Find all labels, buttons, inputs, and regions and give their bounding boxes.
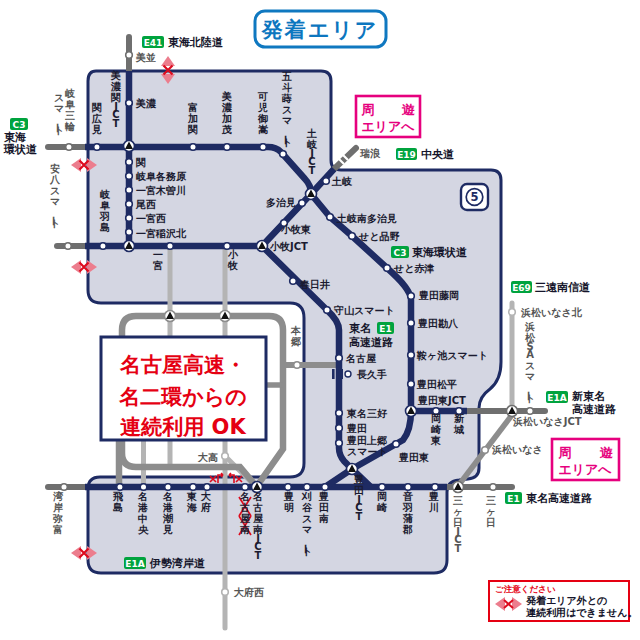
road-name: 東名 — [348, 322, 371, 335]
station-label: 関 — [136, 157, 146, 168]
station-label: 東名三好 — [346, 408, 388, 419]
station-label: 豊田東 — [398, 452, 429, 463]
station-label: 湾岸弥富 — [52, 491, 64, 535]
station-label: 岐阜三輪 — [64, 88, 76, 132]
badge-e1-east: E1 東名高速道路 — [505, 492, 592, 505]
svg-text:C3: C3 — [394, 248, 407, 258]
station-label: 豊明 — [283, 491, 294, 513]
note-line3: 連続利用 OK — [119, 415, 246, 439]
station-label: 名港中央 — [137, 491, 149, 535]
station-label: 大高 — [197, 452, 218, 463]
station-label: 名古屋南 — [239, 491, 251, 535]
station-label: 大府 — [200, 491, 211, 513]
page-title: 発着エリア — [261, 18, 378, 42]
shuyu-word1: 周 — [361, 102, 375, 117]
svg-text:E1A: E1A — [125, 559, 144, 569]
station-label: 小牧 — [227, 249, 239, 271]
svg-text:E69: E69 — [512, 283, 531, 293]
station-label: 多治見 — [266, 197, 296, 208]
station-label: 瑞浪 — [359, 148, 381, 159]
station-label: 三ヶ日 — [486, 495, 496, 528]
badge-e1a-isewangan: E1A 伊勢湾岸道 — [124, 557, 206, 570]
title-box: 発着エリア — [255, 11, 386, 47]
station-label: 土岐南多治見 — [336, 213, 397, 224]
station-label: 浜松SAスマート — [523, 321, 536, 404]
warning-line1: 発着エリア外との — [525, 595, 607, 606]
station-label: 長久手 — [356, 369, 387, 380]
road-name: 三遠南信道 — [535, 281, 591, 294]
station-label: 刈谷スマート — [300, 491, 313, 557]
badge-c3-west: C3 東海 環状道 — [3, 118, 38, 156]
shuyu-line2: エリアへ — [558, 462, 612, 477]
badge-e19: E19 中央道 — [396, 148, 455, 161]
station-label: 守山スマート — [334, 305, 395, 316]
station-label: 豊田松平 — [416, 379, 457, 390]
station-label: 新城 — [453, 413, 465, 435]
svg-text:C3: C3 — [13, 120, 26, 130]
station-label: 豊田 — [346, 423, 367, 434]
station-label: 豊田上郷 — [346, 435, 387, 446]
shuyu-word1: 周 — [558, 445, 572, 460]
station-label: 浜松いなさ北 — [520, 307, 583, 319]
map-number-badge: 5 — [461, 184, 488, 210]
road-name: 中央道 — [421, 148, 455, 161]
station-label: 飛島 — [112, 491, 123, 513]
station-label: 美濃加茂 — [221, 91, 233, 135]
station-label: 岡崎 — [377, 491, 387, 513]
station-label: 東海 — [186, 491, 197, 513]
note-box: 名古屋高速・ 名二環からの 連続利用 OK — [101, 337, 266, 440]
station-label: 関広見 — [91, 102, 102, 135]
badge-e69: E69 三遠南信道 — [511, 281, 591, 294]
station-label: 鞍ヶ池スマート — [416, 350, 488, 361]
road-name: 東海北陸道 — [167, 36, 224, 49]
road-name: 環状道 — [3, 143, 38, 156]
warning-line2: 連続利用はできません。 — [526, 607, 637, 618]
station-label: 豊田勘八 — [417, 318, 459, 329]
map-number: 5 — [470, 190, 478, 204]
shuyu-word2: 遊 — [600, 445, 614, 460]
station-label: せと品野 — [358, 231, 399, 242]
station-label: 岐阜各務原 — [136, 171, 187, 182]
station-label: 豊田南 — [318, 491, 329, 524]
shuyu-line2: エリアへ — [361, 119, 415, 134]
station-label: 本郷 — [290, 325, 301, 347]
road-name: 高速道路 — [572, 403, 616, 416]
station-label: スマート — [52, 92, 64, 136]
station-label: 富加関 — [187, 102, 198, 135]
road-name: 東海環状道 — [411, 246, 468, 259]
svg-text:E1: E1 — [379, 324, 391, 334]
expressway-area-map: 発着エリア 5 周 遊 エリアへ 周 遊 エリアへ 名古屋高速・ 名二環からの … — [0, 0, 640, 640]
note-line2: 名二環からの — [118, 385, 246, 409]
shuyu-box-right: 周 遊 エリアへ — [552, 439, 619, 480]
station-label: 小牧東 — [280, 224, 311, 235]
station-label: 一宮木曽川 — [136, 185, 186, 196]
station-label: 尾西 — [135, 199, 156, 210]
svg-text:E41: E41 — [144, 38, 163, 48]
station-label: 大府西 — [233, 587, 264, 598]
road-name: 新東名 — [571, 390, 605, 403]
station-label: せと赤津 — [393, 263, 434, 274]
road-name: 東名高速道路 — [525, 492, 592, 505]
svg-text:E1A: E1A — [547, 393, 566, 403]
svg-text:E1: E1 — [507, 494, 519, 504]
station-label: 名古屋 — [345, 353, 377, 364]
shuyu-box-top: 周 遊 エリアへ — [356, 96, 420, 137]
shuyu-word2: 遊 — [402, 102, 416, 117]
road-name: 高速道路 — [349, 336, 393, 349]
station-label: 土岐 — [331, 176, 353, 187]
warning-box: ご注意ください 発着エリア外との 連続利用はできません。 — [489, 581, 637, 621]
station-label: 岐阜羽島 — [99, 189, 111, 233]
note-line1: 名古屋高速・ — [119, 353, 246, 377]
station-label: 可児御嵩 — [257, 91, 269, 135]
station-label: 豊川 — [428, 491, 439, 513]
station-label: 一宮稲沢北 — [136, 228, 187, 239]
station-label: 音羽蒲郡 — [402, 491, 413, 535]
station-label: 豊田藤岡 — [418, 290, 459, 301]
station-label: 美並 — [135, 52, 156, 63]
svg-text:E19: E19 — [397, 150, 416, 160]
warning-heading: ご注意ください — [495, 584, 556, 594]
station-label: 五斗蒔スマート — [280, 71, 293, 148]
station-label: 小牧JCT — [269, 241, 308, 252]
station-label: 美濃 — [135, 98, 157, 109]
station-label: 三ヶ日JCT — [453, 495, 463, 554]
station-label: スマート — [347, 446, 388, 457]
station-label: 浜松いなさ — [491, 444, 543, 456]
station-label: 安八スマート — [48, 163, 61, 229]
station-label: 春日井 — [299, 279, 330, 290]
badge-e1a-shintomei: E1A 新東名 高速道路 — [546, 390, 616, 416]
station-label: 一宮 — [153, 249, 163, 271]
station-label: 岡崎東 — [430, 413, 441, 446]
route-map-page: 発着エリア 5 周 遊 エリアへ 周 遊 エリアへ 名古屋高速・ 名二環からの … — [0, 0, 640, 640]
badge-c3-mid: C3 東海環状道 — [391, 246, 468, 259]
station-label: 豊田東JCT — [417, 395, 466, 406]
station-label: 浜松いなさJCT — [512, 416, 582, 428]
station-label: 名港潮見 — [162, 491, 173, 535]
station-label: 一宮西 — [136, 213, 166, 224]
badge-e41: E41 東海北陸道 — [142, 36, 224, 49]
road-name: 伊勢湾岸道 — [149, 557, 206, 570]
